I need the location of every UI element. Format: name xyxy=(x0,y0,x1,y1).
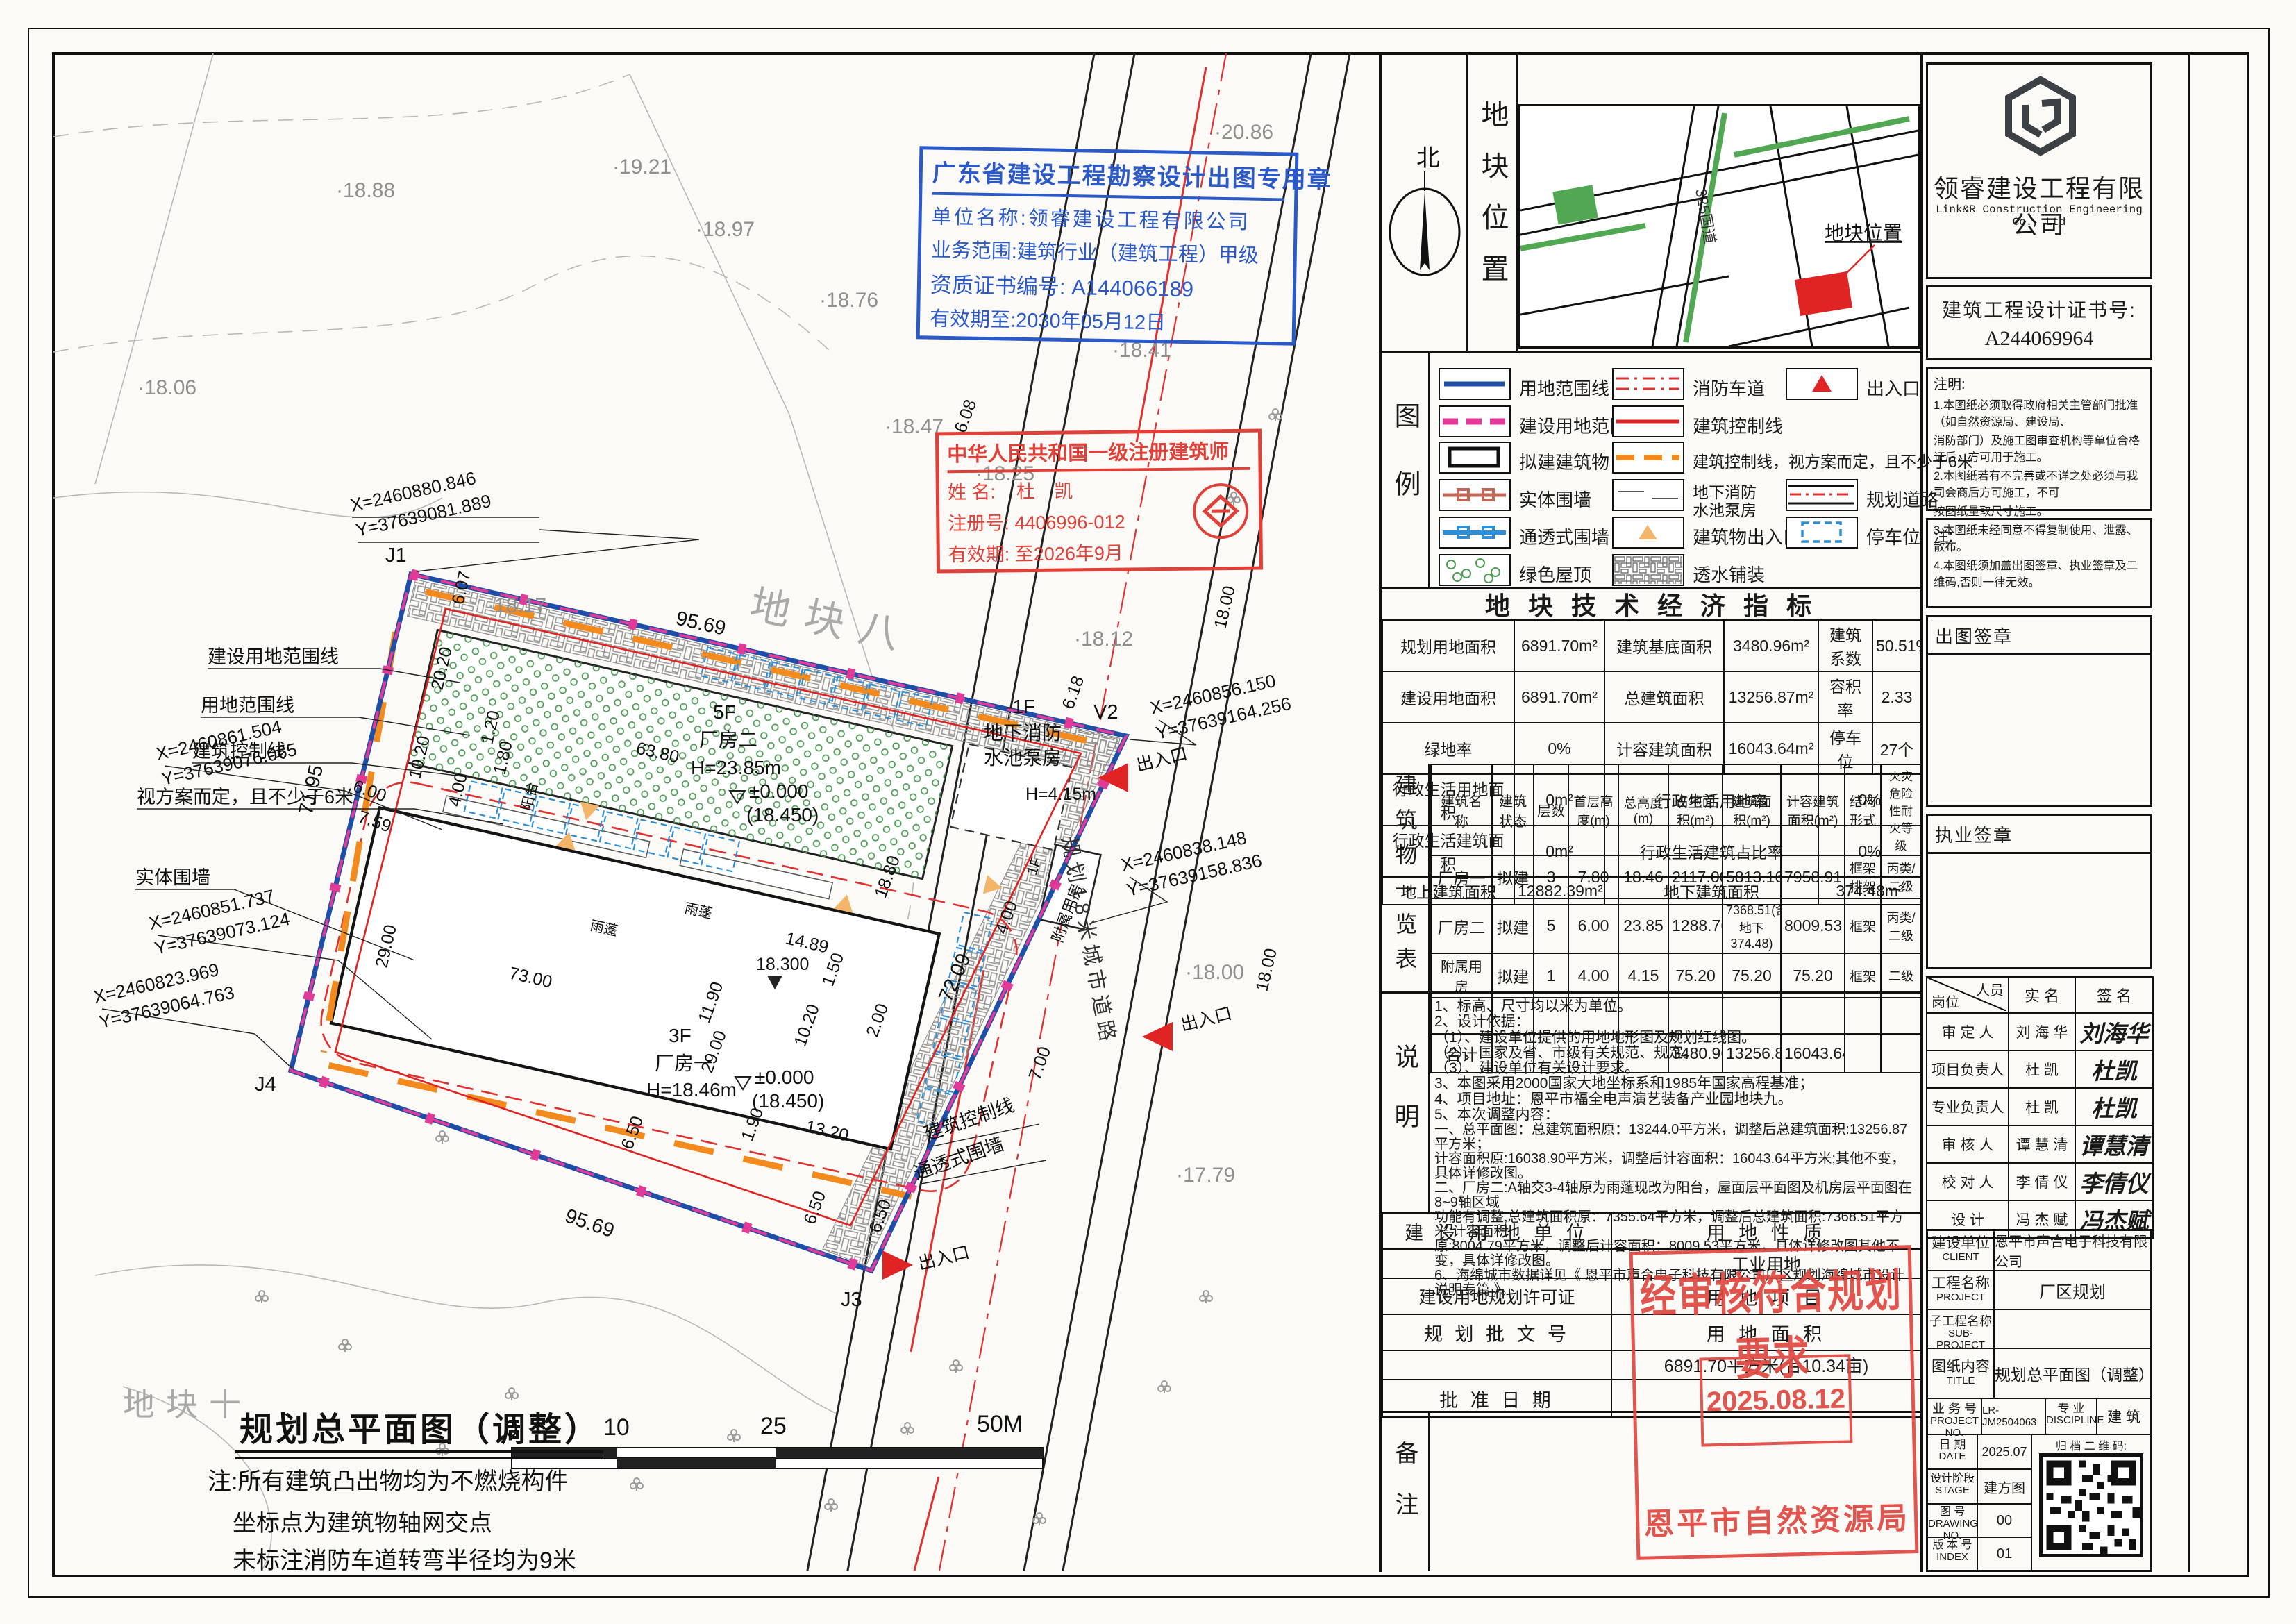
titleblock-notes: 注明: 1.本图纸必须取得政府相关主管部门批准（如自然资源局、建设局、 消防部门… xyxy=(1926,367,2152,511)
legend-swatch-parking xyxy=(1786,517,1858,549)
company-logo xyxy=(1999,74,2082,158)
practice-seal-box: 执业签章 xyxy=(1926,814,2152,969)
titleblock-left-border xyxy=(1920,52,1923,1572)
legend-swatch-permeable-paving xyxy=(1612,554,1684,586)
point-label: J1 xyxy=(385,544,407,567)
gate-label: 出入口 xyxy=(1179,1004,1234,1035)
svg-text:-1F: -1F xyxy=(1006,696,1035,717)
signature: 李倩仪 xyxy=(2080,1170,2149,1197)
signature: 杜凯 xyxy=(2091,1057,2137,1085)
plan-title-block: 规划总平面图（调整） 注:所有建筑凸出物均为不燃烧构件 坐标点为建筑物轴网交点 … xyxy=(208,1412,603,1571)
plan-title: 规划总平面图（调整） xyxy=(240,1412,601,1448)
architect-stamp: 中华人民共和国一级注册建筑师 姓 名: 杜 凯 注册号: 4406996-012… xyxy=(935,429,1263,574)
svg-text:95.69: 95.69 xyxy=(562,1205,617,1242)
qr-code xyxy=(2039,1453,2143,1557)
svg-text:用地范围线: 用地范围线 xyxy=(201,695,294,716)
svg-text:·18.88: ·18.88 xyxy=(336,179,395,202)
note2-box: 注: xyxy=(1926,518,2152,608)
svg-text:H=4.15m: H=4.15m xyxy=(1025,785,1096,804)
qr-label: 归 档 二 维 码: xyxy=(2032,1437,2150,1453)
north-arrow: 北 xyxy=(1382,55,1468,351)
buildings-panel-title: 建筑物一览表 xyxy=(1382,764,1430,991)
indicators-title: 地 块 技 术 经 济 指 标 xyxy=(1382,587,1920,618)
blue-certification-stamp: 广东省建设工程勘察设计出图专用章 单位名称:领睿建设工程有限公司 业务范围:建筑… xyxy=(916,146,1299,345)
notes-panel: 1、标高、尺寸均以米为单位。 2、设计依据： （1）、建设单位提供的用地地形图及… xyxy=(1430,991,1920,1212)
svg-text:·17.79: ·17.79 xyxy=(1176,1164,1235,1187)
svg-text:·18.17: ·18.17 xyxy=(487,594,546,617)
svg-text:实体围墙: 实体围墙 xyxy=(135,867,210,888)
legend-swatch-control-line xyxy=(1612,405,1684,437)
svg-text:6.08: 6.08 xyxy=(950,397,980,435)
cert-box: 建筑工程设计证书号: A244069964 xyxy=(1926,285,2152,360)
legend-panel-title: 图例 xyxy=(1382,351,1430,587)
svg-text:水池泵房: 水池泵房 xyxy=(984,747,1062,769)
svg-text:坐标点为建筑物轴网交点: 坐标点为建筑物轴网交点 xyxy=(233,1510,492,1537)
svg-text:±0.000: ±0.000 xyxy=(755,1066,814,1088)
svg-text:厂房一: 厂房一 xyxy=(655,1053,713,1074)
point-label: V2 xyxy=(1093,701,1118,723)
legend-swatch-green-roof xyxy=(1439,554,1511,586)
svg-text:·20.86: ·20.86 xyxy=(1214,121,1273,144)
company-name-en: Link&R Construction Engineering Co., Ltd xyxy=(1928,203,2150,228)
point-label: J4 xyxy=(255,1073,276,1096)
legend-swatch-solid-wall xyxy=(1439,479,1511,511)
signature-table: 人员 岗位 实 名 签 名 审 定 人刘 海 华刘海华 项目负责人杜 凯杜凯 专… xyxy=(1926,976,2154,1239)
svg-text:18.00: 18.00 xyxy=(1211,584,1239,630)
sign-header-post: 人员 岗位 xyxy=(1927,977,2009,1013)
notes-panel-title: 说明 xyxy=(1382,991,1430,1212)
svg-text:地下消防: 地下消防 xyxy=(984,722,1062,744)
approval-date-box: 2025.08.12 xyxy=(1699,1354,1852,1446)
point-label: J3 xyxy=(841,1289,862,1311)
svg-text:·18.76: ·18.76 xyxy=(819,289,878,312)
issue-seal-box: 出图签章 xyxy=(1926,615,2152,807)
seal-icon xyxy=(1191,481,1251,542)
remark-panel-title: 备注 xyxy=(1382,1411,1430,1571)
svg-text:6.50: 6.50 xyxy=(617,1114,647,1152)
svg-text:厂房二: 厂房二 xyxy=(699,729,757,751)
drawing-sheet: 出入口 出入口 出入口 95.69 95.69 71.95 72.09 63.8… xyxy=(0,0,2296,1624)
svg-text:5F: 5F xyxy=(713,701,736,723)
svg-text:50M: 50M xyxy=(977,1411,1023,1437)
legend-swatch-planned-road xyxy=(1786,479,1858,511)
svg-text:H=23.85m: H=23.85m xyxy=(691,757,781,778)
svg-text:±0.000: ±0.000 xyxy=(749,780,808,802)
project-table: 建设单位CLIENT 恩平市声合电子科技有限公司 工程名称PROJECT 厂区规… xyxy=(1926,1229,2152,1572)
sheet-title: 规划总平面图（调整） xyxy=(1995,1349,2150,1398)
svg-text:·18.12: ·18.12 xyxy=(1074,628,1133,651)
stamp-title: 广东省建设工程勘察设计出图专用章 xyxy=(932,154,1285,201)
svg-text:视方案而定，且不少于6米: 视方案而定，且不少于6米 xyxy=(137,787,353,807)
svg-text:·18.00: ·18.00 xyxy=(1185,961,1244,984)
svg-text:18.00: 18.00 xyxy=(1252,946,1281,993)
svg-text:(18.450): (18.450) xyxy=(746,804,819,826)
signature: 杜凯 xyxy=(2091,1095,2137,1122)
svg-text:北: 北 xyxy=(1416,145,1440,171)
parcel8-label: 地块八 xyxy=(746,582,918,660)
svg-text:未标注消防车道转弯半径均为9米: 未标注消防车道转弯半径均为9米 xyxy=(233,1548,576,1571)
signature: 刘海华 xyxy=(2080,1020,2149,1047)
svg-text:3F: 3F xyxy=(669,1025,692,1046)
legend-swatch-entrance xyxy=(1786,368,1858,400)
location-map: 地块位置 325国道 xyxy=(1518,104,1920,349)
svg-text:·19.21: ·19.21 xyxy=(612,156,671,178)
parcel10-label: 地块十 xyxy=(123,1387,252,1423)
buildings-group xyxy=(283,578,1127,1296)
legend-swatch-building-entrance xyxy=(1612,517,1684,549)
legend-swatch-fire-lane xyxy=(1612,368,1684,400)
svg-text:建设用地范围线: 建设用地范围线 xyxy=(208,646,339,667)
right-margin-line xyxy=(2188,52,2190,1572)
gate-icon xyxy=(1142,1022,1173,1051)
svg-text:(18.450): (18.450) xyxy=(752,1090,824,1112)
legend-swatch-pump-room xyxy=(1612,479,1684,511)
approval-stamp: 经审核符合规划要求 2025.08.12 恩平市自然资源局 xyxy=(1629,1245,1919,1560)
svg-text:25: 25 xyxy=(760,1413,787,1439)
legend-panel: 用地范围线 建设用地范围线 拟建建筑物 实体围墙 通透式围墙 绿色屋顶 消防车道… xyxy=(1430,351,1920,587)
gate-label: 出入口 xyxy=(916,1243,972,1274)
svg-text:6.50: 6.50 xyxy=(800,1189,830,1227)
svg-text:7.00: 7.00 xyxy=(1025,1044,1055,1082)
svg-text:10: 10 xyxy=(603,1414,630,1441)
svg-text:18.300: 18.300 xyxy=(756,955,809,974)
location-panel-title: 地块位置 xyxy=(1468,55,1518,351)
plot-location-marker xyxy=(1795,271,1852,316)
company-box: 领睿建设工程有限公司 Link&R Construction Engineeri… xyxy=(1926,62,2152,279)
svg-text:6.18: 6.18 xyxy=(1058,673,1088,712)
signature: 谭慧清 xyxy=(2080,1132,2149,1160)
legend-swatch-control-line-6m xyxy=(1612,442,1684,474)
svg-text:·18.97: ·18.97 xyxy=(696,218,755,241)
svg-text:建筑控制线: 建筑控制线 xyxy=(192,741,286,762)
legend-swatch-site-line xyxy=(1439,368,1511,400)
legend-swatch-open-wall xyxy=(1439,517,1511,549)
svg-text:H=18.46m: H=18.46m xyxy=(646,1079,737,1100)
legend-swatch-proposed-building xyxy=(1439,442,1511,474)
plot-location-label: 地块位置 xyxy=(1825,222,1902,244)
svg-text:注:所有建筑凸出物均为不燃烧构件: 注:所有建筑凸出物均为不燃烧构件 xyxy=(208,1468,568,1495)
svg-text:·18.06: ·18.06 xyxy=(137,376,196,399)
legend-swatch-construction-line xyxy=(1439,405,1511,437)
gate-label: 出入口 xyxy=(1134,744,1190,776)
qr-area: 归 档 二 维 码: xyxy=(2032,1435,2150,1570)
